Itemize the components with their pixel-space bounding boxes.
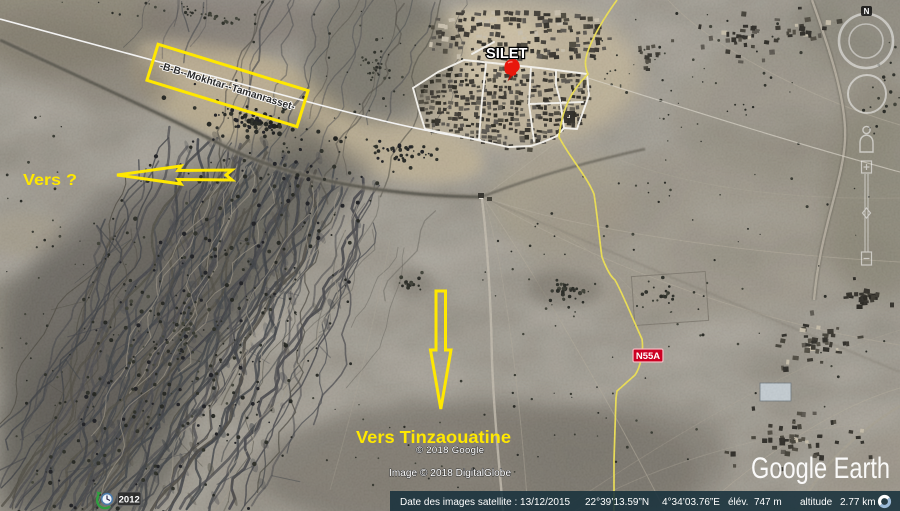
svg-text:2012: 2012 <box>119 494 140 505</box>
svg-text:© 2018 Google: © 2018 Google <box>416 445 484 456</box>
svg-text:Google Earth: Google Earth <box>751 452 890 485</box>
svg-text:Image © 2018 DigitalGlobe: Image © 2018 DigitalGlobe <box>389 468 511 479</box>
svg-text:2.77 km: 2.77 km <box>840 497 876 508</box>
svg-text:altitude: altitude <box>800 497 833 508</box>
svg-text:N55A: N55A <box>636 351 660 362</box>
svg-text:N: N <box>864 7 870 16</box>
svg-text:élév. 747 m: élév. 747 m <box>728 497 782 508</box>
svg-text:Vers ?: Vers ? <box>23 172 77 189</box>
svg-text:Date des images satellite : 13: Date des images satellite : 13/12/2015 <box>400 497 571 508</box>
svg-text:22°39’13.59”N: 22°39’13.59”N <box>585 497 649 508</box>
svg-text:4°34’03.76”E: 4°34’03.76”E <box>662 497 720 508</box>
svg-text:Vers Tinzaouatine: Vers Tinzaouatine <box>356 427 511 447</box>
svg-text:SILET: SILET <box>486 46 528 62</box>
